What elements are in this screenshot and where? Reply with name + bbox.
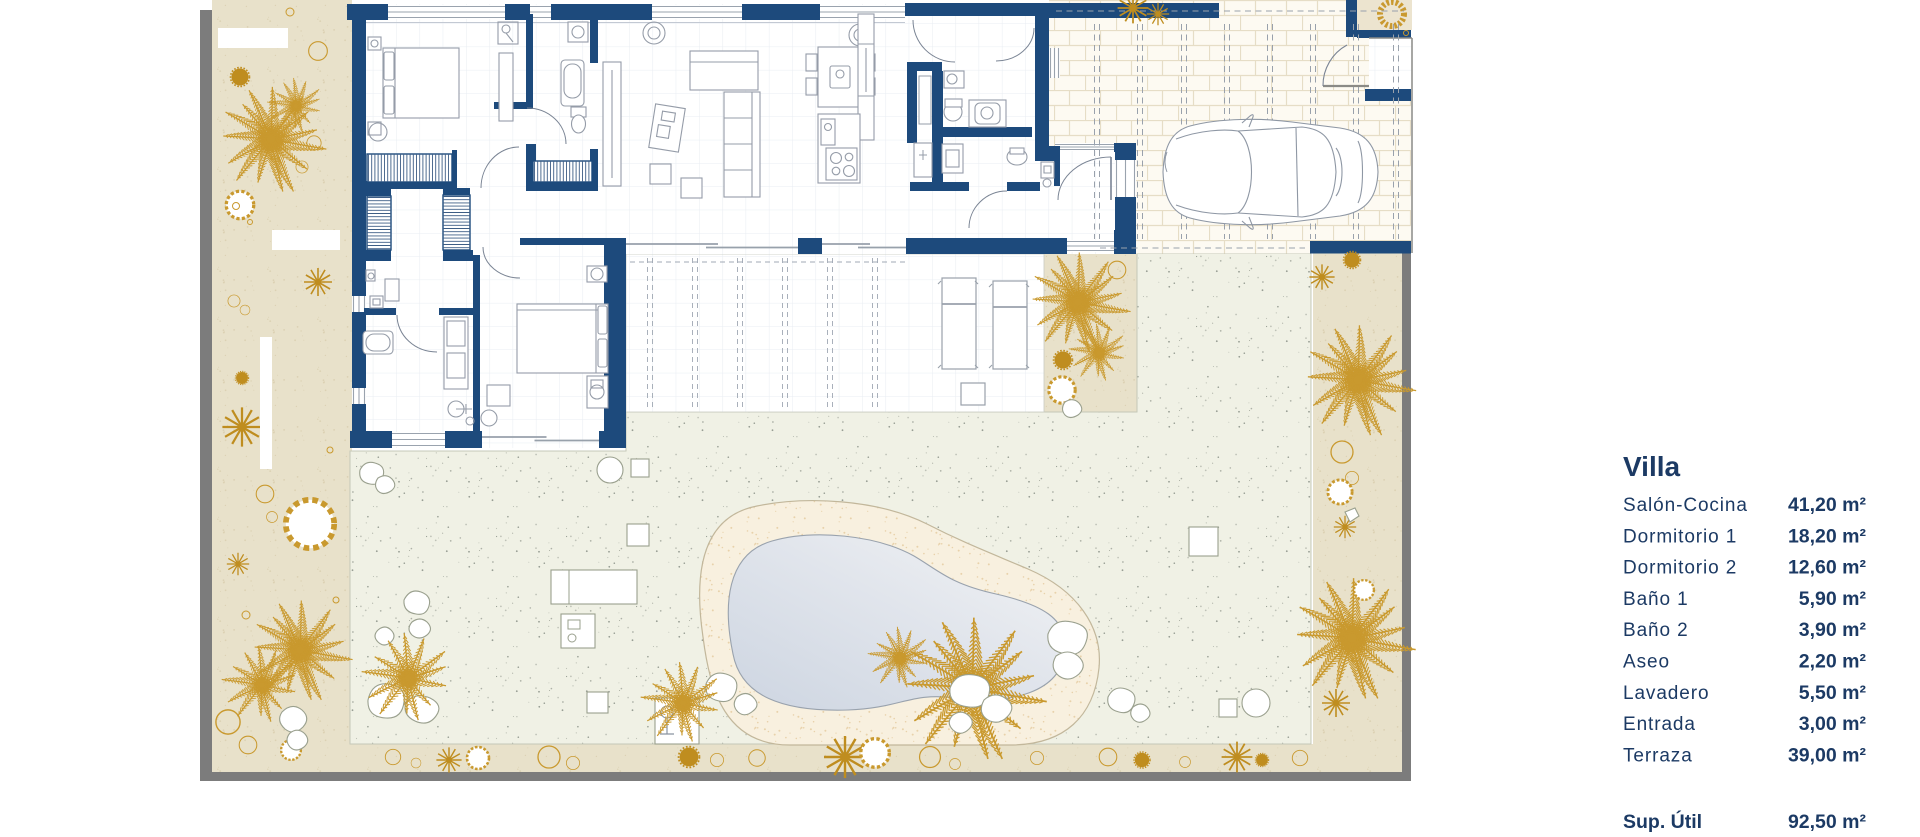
- svg-text:Salón-Cocina: Salón-Cocina: [1623, 495, 1748, 516]
- svg-text:41,20 m²: 41,20 m²: [1788, 494, 1867, 516]
- svg-text:Dormitorio 2: Dormitorio 2: [1623, 558, 1737, 579]
- svg-text:3,90 m²: 3,90 m²: [1799, 619, 1867, 641]
- svg-text:3,00 m²: 3,00 m²: [1799, 713, 1867, 735]
- svg-text:2,20 m²: 2,20 m²: [1799, 651, 1867, 673]
- svg-text:12,60 m²: 12,60 m²: [1788, 557, 1867, 579]
- svg-text:Entrada: Entrada: [1623, 714, 1696, 735]
- svg-text:Dormitorio 1: Dormitorio 1: [1623, 526, 1737, 547]
- svg-text:39,00 m²: 39,00 m²: [1788, 744, 1867, 766]
- svg-text:5,50 m²: 5,50 m²: [1799, 682, 1867, 704]
- svg-text:5,90 m²: 5,90 m²: [1799, 588, 1867, 610]
- svg-text:Baño 2: Baño 2: [1623, 620, 1689, 641]
- svg-text:92,50 m²: 92,50 m²: [1788, 811, 1867, 833]
- svg-text:Lavadero: Lavadero: [1623, 683, 1709, 704]
- svg-text:Villa: Villa: [1623, 451, 1681, 482]
- svg-text:Aseo: Aseo: [1623, 652, 1670, 673]
- svg-text:Sup. Útil: Sup. Útil: [1623, 809, 1702, 833]
- svg-text:18,20 m²: 18,20 m²: [1788, 525, 1867, 547]
- svg-text:Terraza: Terraza: [1623, 745, 1693, 766]
- svg-text:Baño 1: Baño 1: [1623, 589, 1689, 610]
